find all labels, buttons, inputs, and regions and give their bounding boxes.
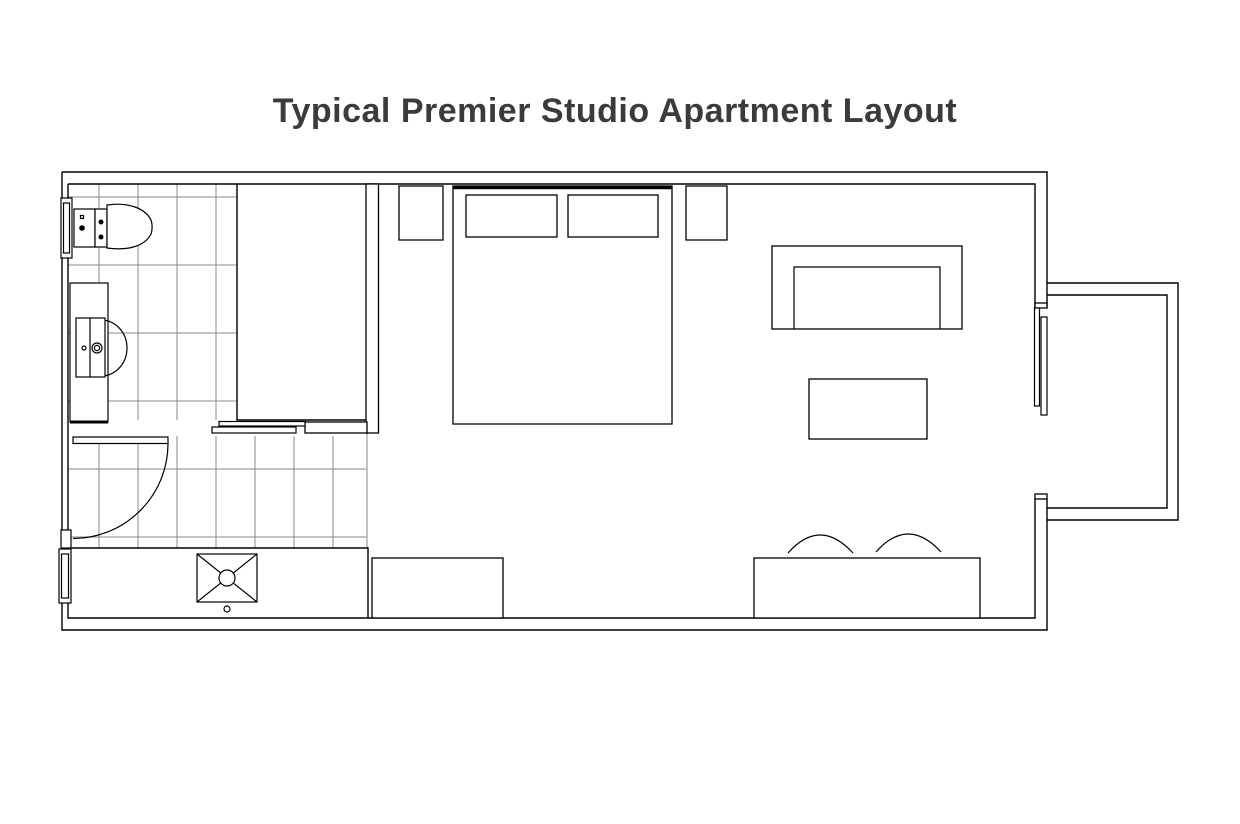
pillow-icon — [568, 195, 658, 237]
closet — [212, 184, 379, 433]
floor-plan-diagram — [0, 0, 1240, 824]
floor-drain-icon — [197, 554, 257, 612]
floor-plan-page: Typical Premier Studio Apartment Layout — [0, 0, 1240, 824]
window-icon — [59, 549, 71, 603]
wall-stub — [61, 530, 71, 548]
chair-icon — [876, 534, 941, 552]
closet-sliding-door-panel-icon — [212, 427, 296, 433]
sofa-icon — [772, 246, 962, 329]
nightstand-icon — [686, 186, 727, 240]
desk-with-chairs — [754, 534, 980, 618]
desk-icon — [754, 558, 980, 618]
nightstand-icon — [399, 186, 443, 240]
sliding-glass-door-panel-icon — [1041, 317, 1047, 415]
chair-icon — [788, 535, 853, 553]
door-jamb-bottom — [1035, 494, 1047, 499]
wall-segment — [305, 422, 367, 433]
window-icon — [61, 198, 72, 258]
dresser-icon — [372, 558, 503, 618]
pillow-icon — [466, 195, 557, 237]
partition-wall — [366, 184, 379, 433]
bed-icon — [453, 186, 672, 424]
door-swing-icon — [73, 437, 168, 539]
sliding-glass-door-panel-icon — [1035, 308, 1040, 406]
balcony — [1035, 283, 1179, 520]
closet-sliding-door-panel-icon — [219, 422, 305, 427]
shower-area — [68, 548, 368, 618]
door-jamb-top — [1035, 303, 1047, 308]
coffee-table-icon — [809, 379, 927, 439]
toilet-icon — [74, 204, 152, 249]
